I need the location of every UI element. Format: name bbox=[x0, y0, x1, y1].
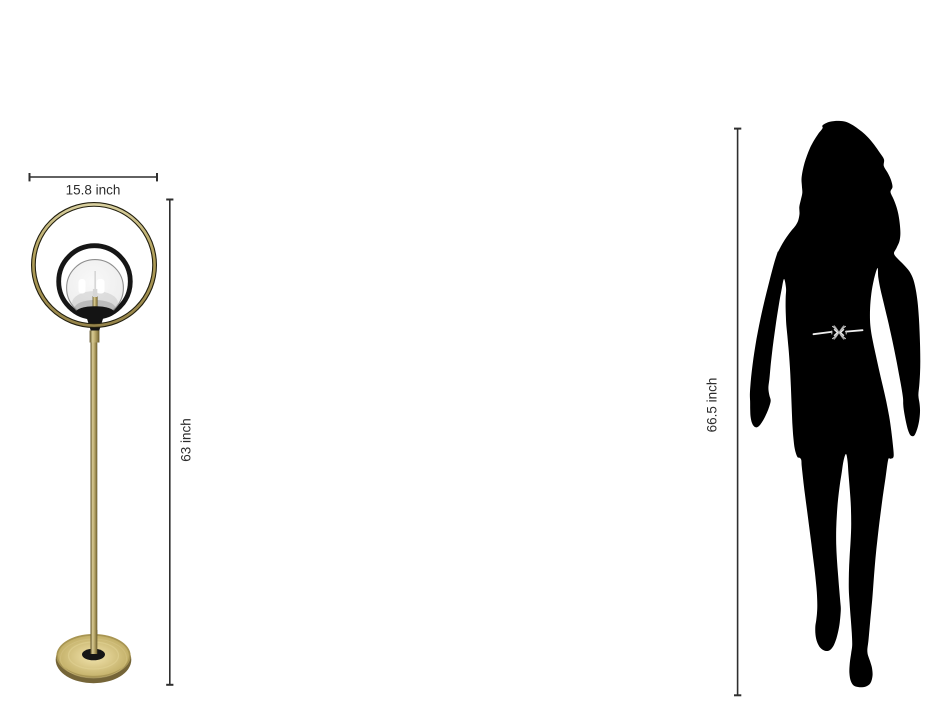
svg-text:15.8 inch: 15.8 inch bbox=[66, 183, 121, 198]
svg-text:63 inch: 63 inch bbox=[179, 418, 194, 462]
svg-text:66.5 inch: 66.5 inch bbox=[705, 378, 720, 433]
